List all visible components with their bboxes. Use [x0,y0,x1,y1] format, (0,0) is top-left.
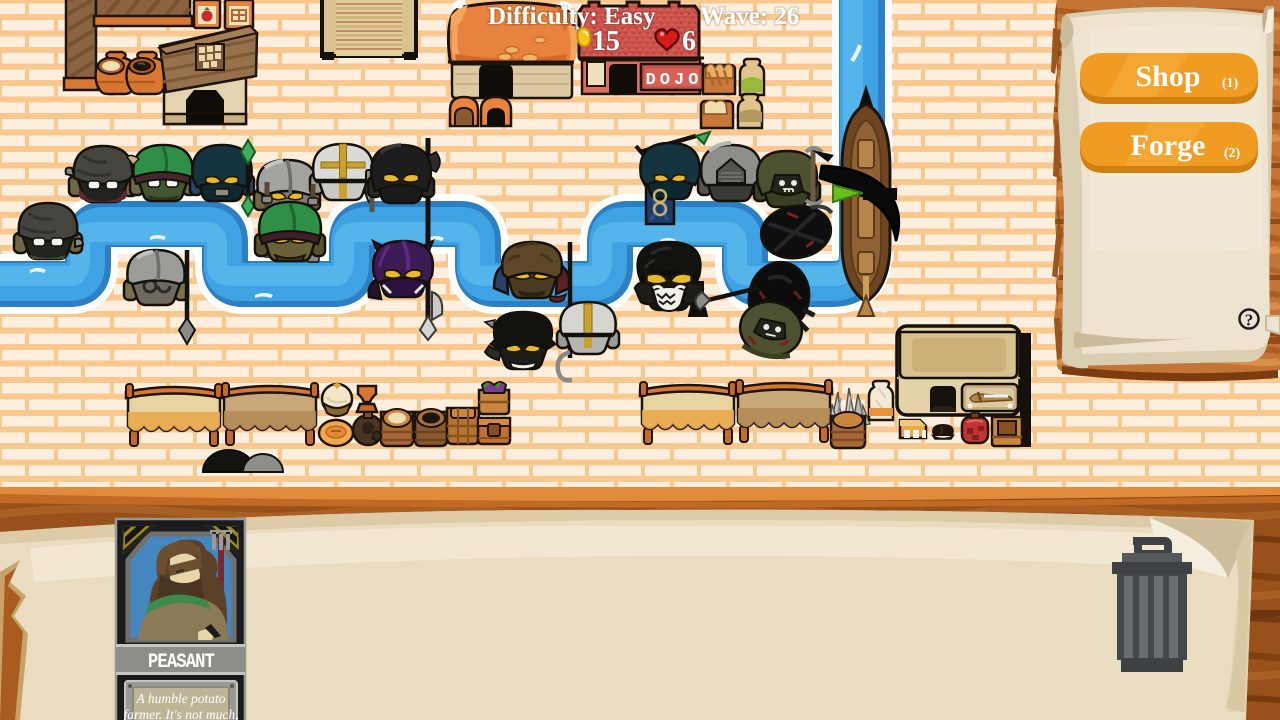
svg-text:6: 6 [682,26,696,57]
svg-text:PEASANT: PEASANT [148,650,215,674]
svg-text:15: 15 [592,26,620,57]
svg-text:?: ? [1245,311,1254,330]
svg-text:Wave: 26: Wave: 26 [700,3,799,30]
svg-text:Shop: Shop [1135,60,1200,93]
svg-text:(2): (2) [1224,146,1241,161]
svg-text:A humble potato: A humble potato [136,691,226,706]
svg-text:(1): (1) [1222,76,1239,91]
svg-text:Difficulty: Easy: Difficulty: Easy [488,3,656,30]
svg-text:DOJO: DOJO [646,71,703,90]
svg-text:farmer. It's not much,: farmer. It's not much, [123,707,238,720]
svg-text:Forge: Forge [1131,129,1206,162]
